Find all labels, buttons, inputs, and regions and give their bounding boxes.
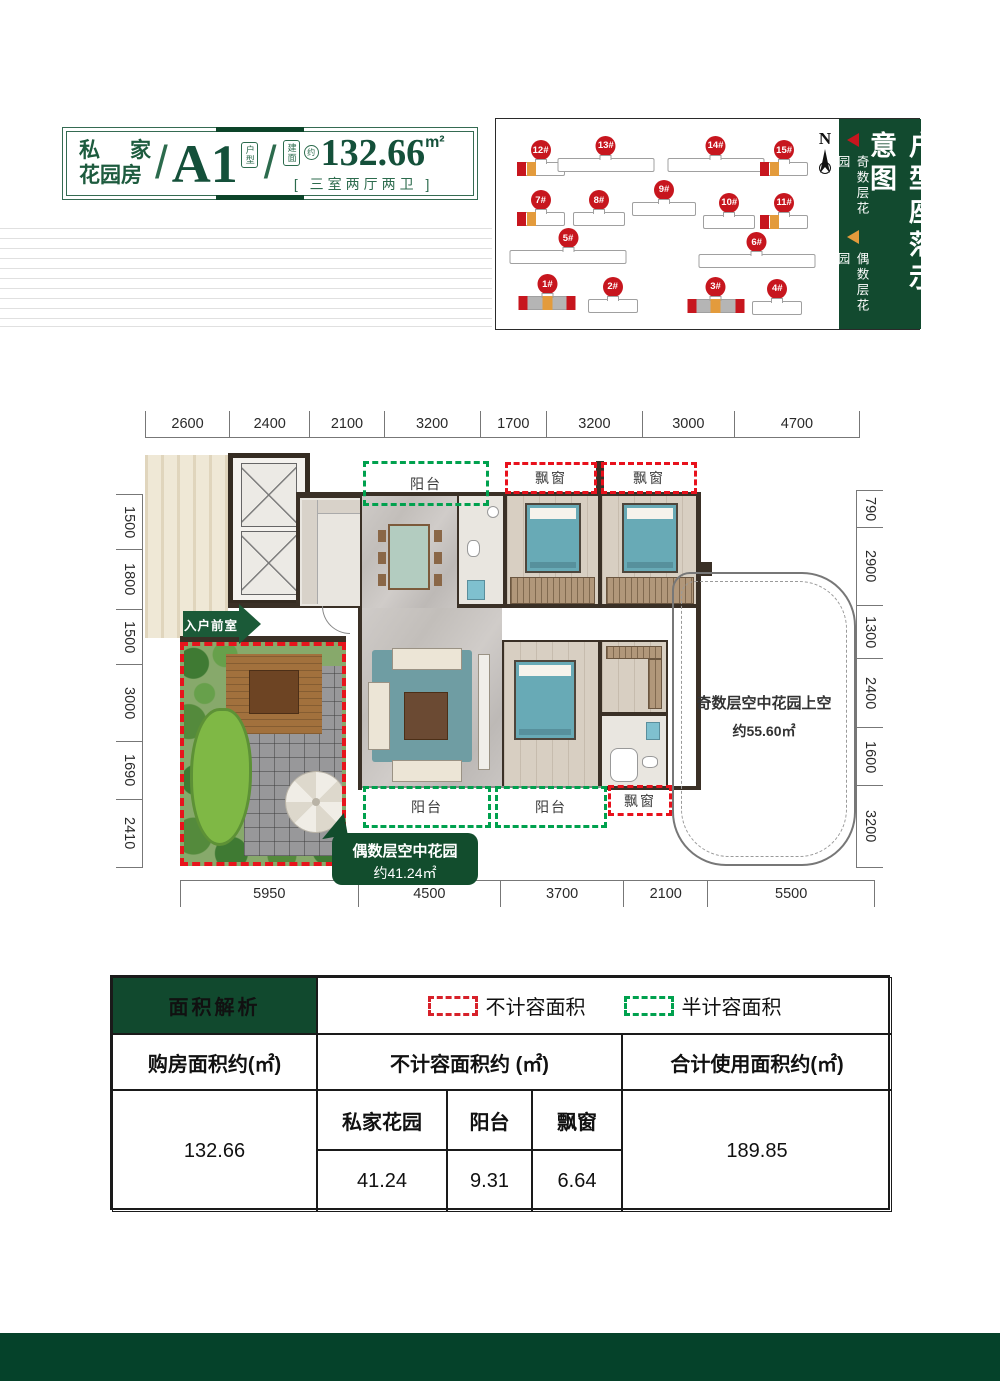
dimension-2400: 2400 xyxy=(229,411,309,437)
building-footprint xyxy=(760,215,808,229)
building-footprint xyxy=(588,299,638,313)
dining-table xyxy=(388,524,430,590)
building-number-badge: 10# xyxy=(719,193,739,213)
entry-label: 入户前室 xyxy=(183,611,239,637)
building-footprint xyxy=(752,301,802,315)
bay-window-overlay: 飘窗 xyxy=(601,462,697,494)
dimension-5500: 5500 xyxy=(707,881,875,907)
dimension-1600: 1600 xyxy=(857,727,883,785)
building-number-badge: 11# xyxy=(774,193,794,213)
building-footprint xyxy=(632,202,696,216)
siteplan-title: 户型座落示意图 xyxy=(862,131,940,319)
dimension-3000: 3000 xyxy=(642,411,734,437)
building-footprint xyxy=(760,162,808,176)
dimension-3700: 3700 xyxy=(500,881,623,907)
dimension-2900: 2900 xyxy=(857,527,883,604)
building-7#: 7# xyxy=(517,190,565,226)
subheader-baywindow: 飘窗 xyxy=(532,1090,622,1150)
building-number-badge: 7# xyxy=(531,190,551,210)
sofa xyxy=(392,760,462,782)
elevator-car xyxy=(241,531,297,595)
dimension-5950: 5950 xyxy=(180,881,358,907)
total-area-value: 189.85 xyxy=(622,1090,892,1212)
building-footprint xyxy=(510,250,627,264)
sink xyxy=(487,506,499,518)
dimension-1500: 1500 xyxy=(116,609,142,664)
legend-red-label: 不计容面积 xyxy=(486,991,586,1020)
dimension-790: 790 xyxy=(857,490,883,527)
subheader-balcony: 阳台 xyxy=(447,1090,532,1150)
building-4#: 4# xyxy=(752,279,802,315)
badge-tail xyxy=(318,813,347,839)
building-number-badge: 2# xyxy=(603,277,623,297)
kitchen-counter xyxy=(318,500,360,514)
bed xyxy=(514,660,576,740)
approx-mark: 约 xyxy=(304,145,319,160)
building-number-badge: 13# xyxy=(596,136,616,156)
room-layout-desc: [ 三室两厅两卫 ] xyxy=(294,174,434,194)
entry-arrow: 入户前室 xyxy=(183,604,261,644)
elevator-car xyxy=(241,463,297,527)
dining-chairs xyxy=(434,530,442,586)
walk-in-closet xyxy=(600,640,668,714)
wall xyxy=(358,606,362,790)
even-garden-badge: 偶数层空中花园 约41.24㎡ xyxy=(332,833,478,885)
area-table-legend: 不计容面积 半计容面积 xyxy=(317,977,892,1034)
dimension-1300: 1300 xyxy=(857,605,883,658)
kitchen xyxy=(298,496,362,608)
building-14#: 14# xyxy=(667,136,764,172)
building-3#: 3# xyxy=(687,277,744,313)
bed xyxy=(622,503,678,573)
wall xyxy=(296,492,300,608)
compass-needle-icon xyxy=(817,149,833,177)
even-floor-garden-icon xyxy=(847,230,859,244)
building-number-badge: 8# xyxy=(589,190,609,210)
dimension-2410: 2410 xyxy=(116,799,142,868)
ruler-right: 79029001300240016003200 xyxy=(856,490,883,868)
ruler-top: 26002400210032001700320030004700 xyxy=(145,411,860,438)
sky-garden-void-label: 奇数层空中花园上空 约55.60㎡ xyxy=(674,692,854,741)
green-dash-legend-icon xyxy=(624,996,674,1016)
dimension-2600: 2600 xyxy=(145,411,229,437)
building-15#: 15# xyxy=(760,140,808,176)
balcony-bottom-overlay: 阳台 xyxy=(495,786,607,828)
unit-title: 私家 花园房 xyxy=(79,139,151,187)
built-area-seal: 建面 xyxy=(283,140,300,166)
legend-green-label: 半计容面积 xyxy=(682,991,782,1020)
building-footprint xyxy=(519,296,576,310)
dimension-1700: 1700 xyxy=(480,411,547,437)
noncount-area-header: 不计容面积约 (㎡) xyxy=(317,1034,622,1090)
master-bedroom xyxy=(502,640,600,788)
purchase-area-header: 购房面积约(㎡) xyxy=(112,1034,317,1090)
odd-floor-garden-icon xyxy=(847,133,859,147)
sofa xyxy=(392,648,462,670)
built-area: 建面 约 132.66 m² [ 三室两厅两卫 ] xyxy=(283,134,445,194)
dimension-1800: 1800 xyxy=(116,549,142,609)
building-10#: 10# xyxy=(703,193,755,229)
dimension-2400: 2400 xyxy=(857,658,883,728)
bed xyxy=(525,503,581,573)
building-number-badge: 14# xyxy=(706,136,726,156)
built-area-value: 132.66 xyxy=(321,134,426,172)
ruler-bottom: 59504500370021005500 xyxy=(180,880,875,907)
value-balcony: 9.31 xyxy=(447,1150,532,1212)
building-number-badge: 5# xyxy=(558,228,578,248)
siteplan-sidebar: 奇数层花园 偶数层花园 户型座落示意图 xyxy=(839,119,921,329)
dimension-3200: 3200 xyxy=(384,411,480,437)
area-table-title: 面积解析 xyxy=(112,977,317,1034)
value-baywindow: 6.64 xyxy=(532,1150,622,1212)
bay-window-overlay: 飘窗 xyxy=(505,462,597,494)
bathroom-2 xyxy=(457,494,505,608)
wall xyxy=(457,604,700,608)
ruler-left: 150018001500300016902410 xyxy=(116,494,143,868)
brochure-page: 私家 花园房 / A1 户型 / 建面 约 132.66 m² [ 三室两厅两卫… xyxy=(0,0,1000,1381)
bedroom-2 xyxy=(505,494,600,608)
dining-chairs xyxy=(378,530,386,586)
closet-shelf xyxy=(648,659,662,709)
dimension-2100: 2100 xyxy=(309,411,383,437)
shower xyxy=(467,580,485,600)
building-11#: 11# xyxy=(760,193,808,229)
building-footprint xyxy=(698,254,815,268)
building-footprint xyxy=(573,212,625,226)
door-swing xyxy=(322,606,350,634)
footer-bar xyxy=(0,1333,1000,1381)
building-number-badge: 1# xyxy=(537,274,557,294)
total-area-header: 合计使用面积约(㎡) xyxy=(622,1034,892,1090)
closet-shelf xyxy=(606,646,662,659)
toilet xyxy=(467,540,480,557)
building-5#: 5# xyxy=(510,228,627,264)
kitchen-counter xyxy=(302,500,318,604)
dimension-4700: 4700 xyxy=(734,411,860,437)
built-area-unit: m² xyxy=(425,134,445,152)
building-number-badge: 15# xyxy=(774,140,794,160)
living-room xyxy=(362,608,502,788)
dimension-3200: 3200 xyxy=(546,411,642,437)
building-footprint xyxy=(703,215,755,229)
building-2#: 2# xyxy=(588,277,638,313)
building-footprint xyxy=(667,158,764,172)
area-table: 面积解析 不计容面积 半计容面积 购房面积约(㎡) 不计容面积约 (㎡) 合计使… xyxy=(110,975,890,1210)
sofa xyxy=(368,682,390,750)
siteplan-buildings: 12#13#14#15#7#8#9#10#11#5#6#1#2#3#4# xyxy=(496,119,839,329)
building-footprint xyxy=(517,212,565,226)
building-13#: 13# xyxy=(557,136,654,172)
balcony-bottom-overlay: 阳台 xyxy=(363,786,491,828)
building-number-badge: 12# xyxy=(531,140,551,160)
building-9#: 9# xyxy=(632,180,696,216)
tv-console xyxy=(478,654,490,770)
red-dash-legend-icon xyxy=(428,996,478,1016)
building-6#: 6# xyxy=(698,232,815,268)
building-number-badge: 3# xyxy=(706,277,726,297)
unit-title-badge: 私家 花园房 / A1 户型 / 建面 约 132.66 m² [ 三室两厅两卫… xyxy=(62,127,478,200)
dimension-1690: 1690 xyxy=(116,741,142,799)
toilet xyxy=(642,756,658,768)
building-number-badge: 6# xyxy=(747,232,767,252)
dimension-1500: 1500 xyxy=(116,494,142,549)
value-garden: 41.24 xyxy=(317,1150,447,1212)
dining-room xyxy=(362,496,458,608)
compass-n-label: N xyxy=(812,129,838,149)
coffee-table xyxy=(404,692,448,740)
sky-garden-void: 奇数层空中花园上空 约55.60㎡ xyxy=(672,572,856,866)
bay-window-bottom-overlay: 飘窗 xyxy=(608,785,672,816)
unit-type-seal: 户型 xyxy=(241,142,258,168)
wardrobe xyxy=(510,577,595,604)
building-number-badge: 9# xyxy=(654,180,674,200)
dimension-3200: 3200 xyxy=(857,785,883,868)
building-footprint xyxy=(557,158,654,172)
dimension-2100: 2100 xyxy=(623,881,707,907)
balcony-top-overlay: 阳台 xyxy=(363,461,489,506)
slash-divider: / xyxy=(155,135,168,189)
slash-divider: / xyxy=(264,135,277,189)
sink xyxy=(646,722,660,740)
building-8#: 8# xyxy=(573,190,625,226)
decorative-stripes xyxy=(0,228,492,327)
building-footprint xyxy=(687,299,744,313)
building-number-badge: 4# xyxy=(767,279,787,299)
master-bathroom xyxy=(600,714,668,788)
siteplan-panel: 12#13#14#15#7#8#9#10#11#5#6#1#2#3#4# N 奇… xyxy=(495,118,920,330)
purchase-area-value: 132.66 xyxy=(112,1090,317,1212)
garden-table xyxy=(249,670,299,714)
dimension-3000: 3000 xyxy=(116,664,142,741)
subheader-garden: 私家花园 xyxy=(317,1090,447,1150)
unit-code: A1 xyxy=(172,137,238,191)
bathtub xyxy=(610,748,638,782)
entry-arrow-tip xyxy=(239,604,261,644)
building-1#: 1# xyxy=(519,274,576,310)
